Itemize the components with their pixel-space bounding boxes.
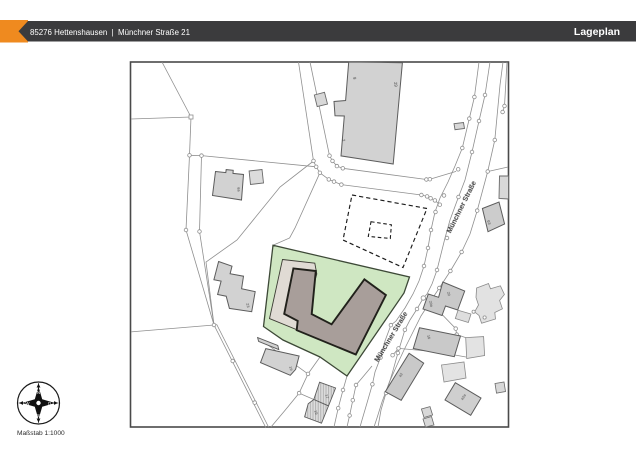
svg-text:S: S — [37, 413, 40, 418]
svg-text:O: O — [48, 401, 52, 406]
svg-text:N: N — [37, 390, 40, 395]
svg-text:Lageplan: Lageplan — [574, 26, 620, 38]
svg-text:Maßstab 1:1000: Maßstab 1:1000 — [17, 430, 65, 437]
svg-text:85276 Hettenshausen | Münchn: 85276 Hettenshausen | Münchner Straße 21 — [30, 28, 190, 37]
